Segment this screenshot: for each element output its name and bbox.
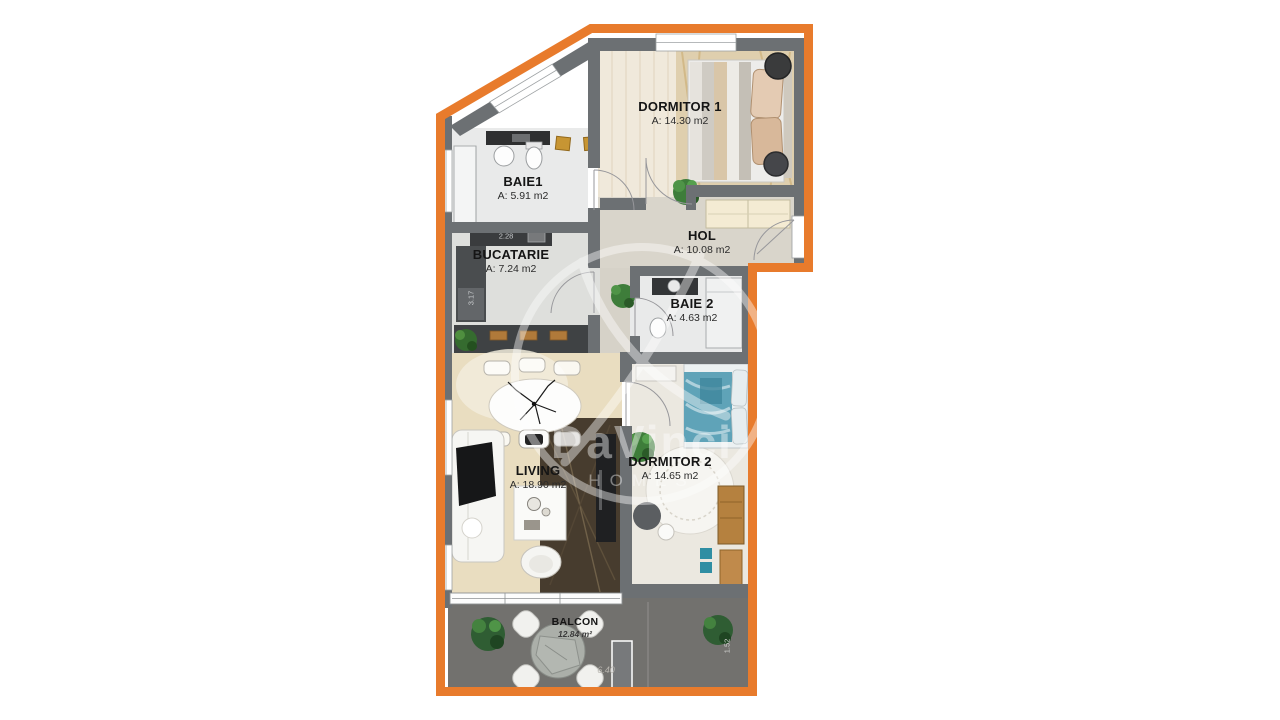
bench xyxy=(718,486,744,544)
toilet xyxy=(526,142,542,169)
plant xyxy=(703,615,733,645)
floorplan-page: DaVinci HOMES DORMITOR 1 A: 14.30 m2 BAI… xyxy=(0,0,1280,720)
balcony-pillar xyxy=(612,641,632,689)
balcony-table xyxy=(531,624,585,678)
plant xyxy=(471,617,505,651)
sink xyxy=(494,146,514,166)
coffee-table xyxy=(514,486,566,540)
pouf xyxy=(764,152,788,176)
pouf xyxy=(765,53,791,79)
armchair xyxy=(521,546,561,578)
sofa xyxy=(452,430,504,562)
furniture-dormitor-1 xyxy=(673,46,800,205)
plant xyxy=(455,329,477,351)
watermark-text-line2: HOMES xyxy=(588,471,695,490)
floorplan-drawing: DaVinci HOMES xyxy=(0,0,1280,720)
pouf xyxy=(633,502,661,530)
watermark-text-line1: DaVinci xyxy=(551,416,733,468)
